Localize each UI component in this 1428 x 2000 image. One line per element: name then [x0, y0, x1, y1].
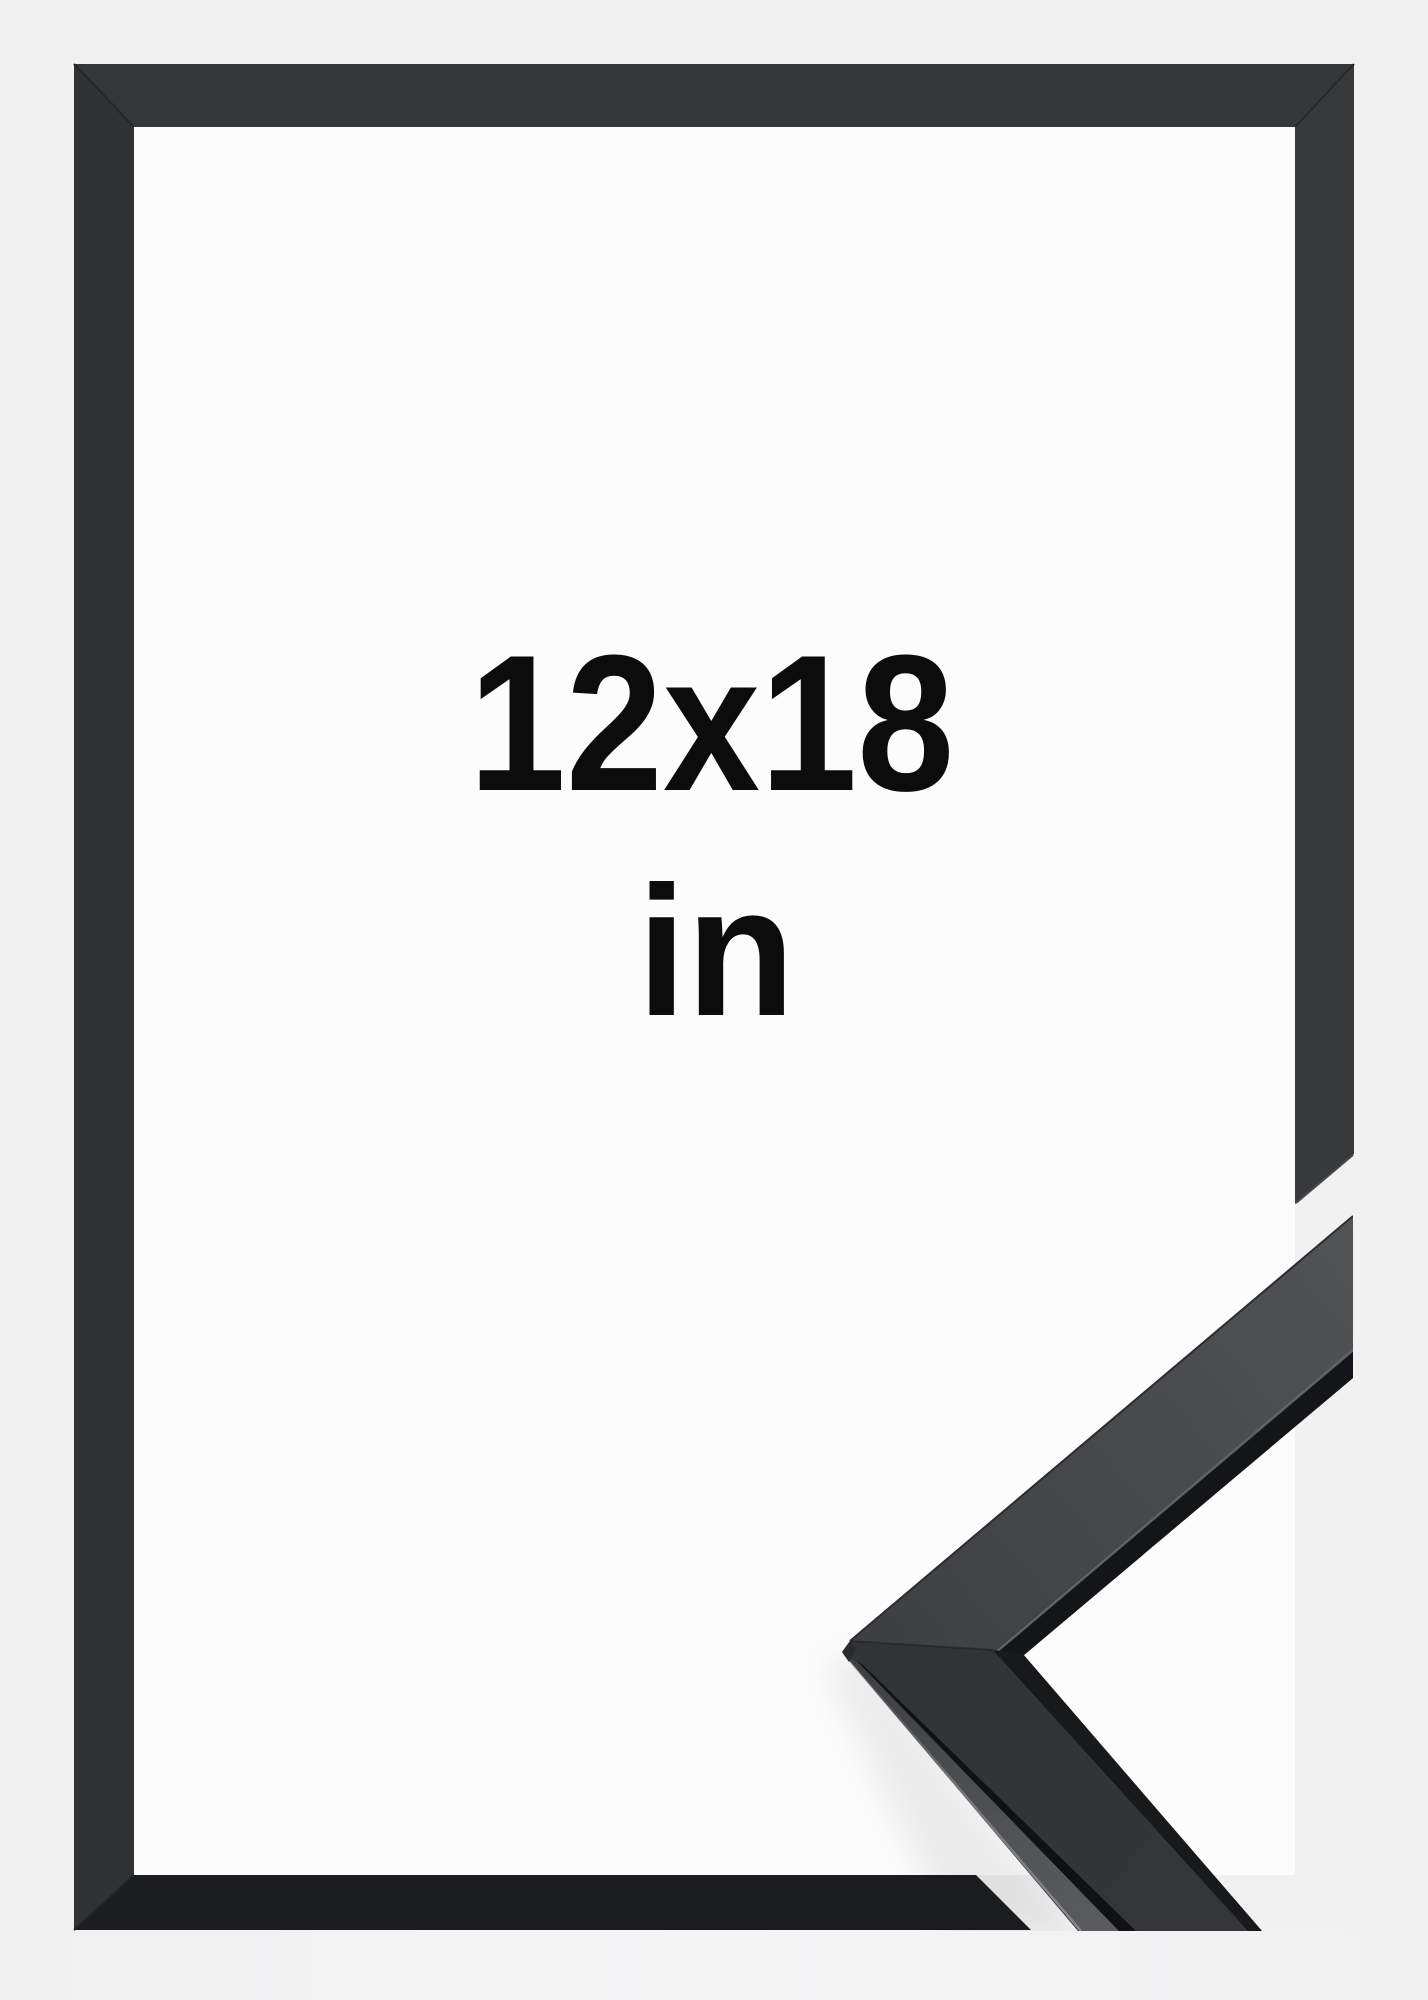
svg-text:in: in: [637, 849, 795, 1055]
svg-text:12x18: 12x18: [469, 616, 955, 833]
